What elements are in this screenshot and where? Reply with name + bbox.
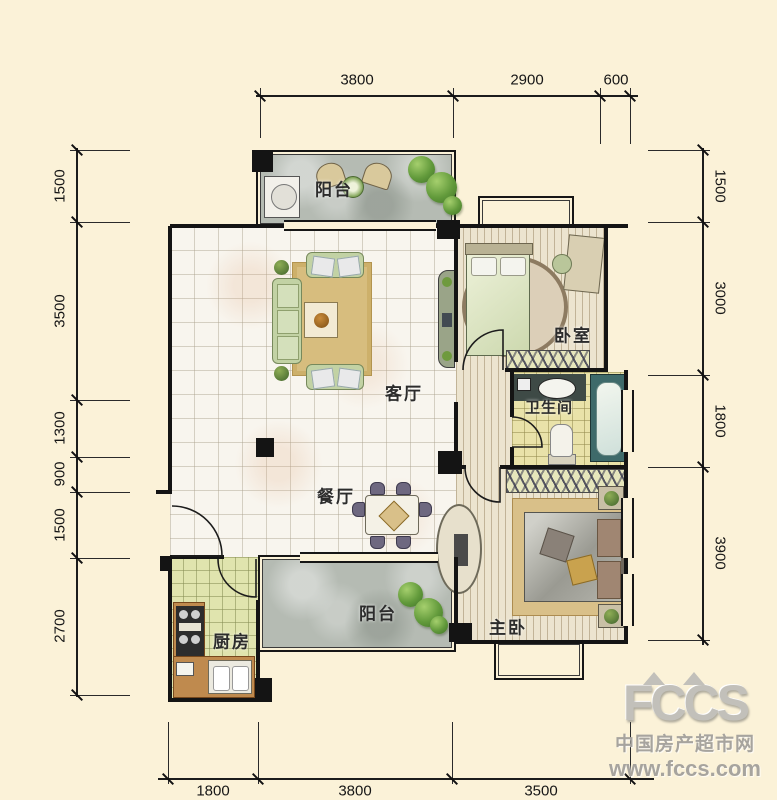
room-label-bedroom: 卧室 <box>554 322 592 347</box>
room-label-dining: 餐厅 <box>317 483 355 508</box>
room-label-living: 客厅 <box>385 380 423 405</box>
fccs-logo: FCCS <box>595 679 775 727</box>
room-label-bathroom: 卫生间 <box>525 397 573 418</box>
bedroom-door <box>463 330 503 370</box>
kitchen-door <box>218 559 256 597</box>
house-roof-icon <box>643 672 665 685</box>
room-label-master: 主卧 <box>489 614 527 639</box>
watermark-site-name: 中国房产超市网 <box>595 729 775 756</box>
floor-plan-page: { "rooms": { "balcony_top": "阳台", "livin… <box>0 0 777 800</box>
room-label-balcony-top: 阳台 <box>315 176 353 201</box>
watermark: FCCS 中国房产超市网 www.fccs.com <box>595 679 775 782</box>
bathroom-door <box>512 417 542 447</box>
house-roof-icon <box>683 672 705 685</box>
room-label-kitchen: 厨房 <box>213 628 251 653</box>
room-label-balcony-bottom: 阳台 <box>359 600 397 625</box>
master-door <box>465 467 500 502</box>
entry-door <box>172 506 222 556</box>
watermark-url: www.fccs.com <box>595 756 775 782</box>
